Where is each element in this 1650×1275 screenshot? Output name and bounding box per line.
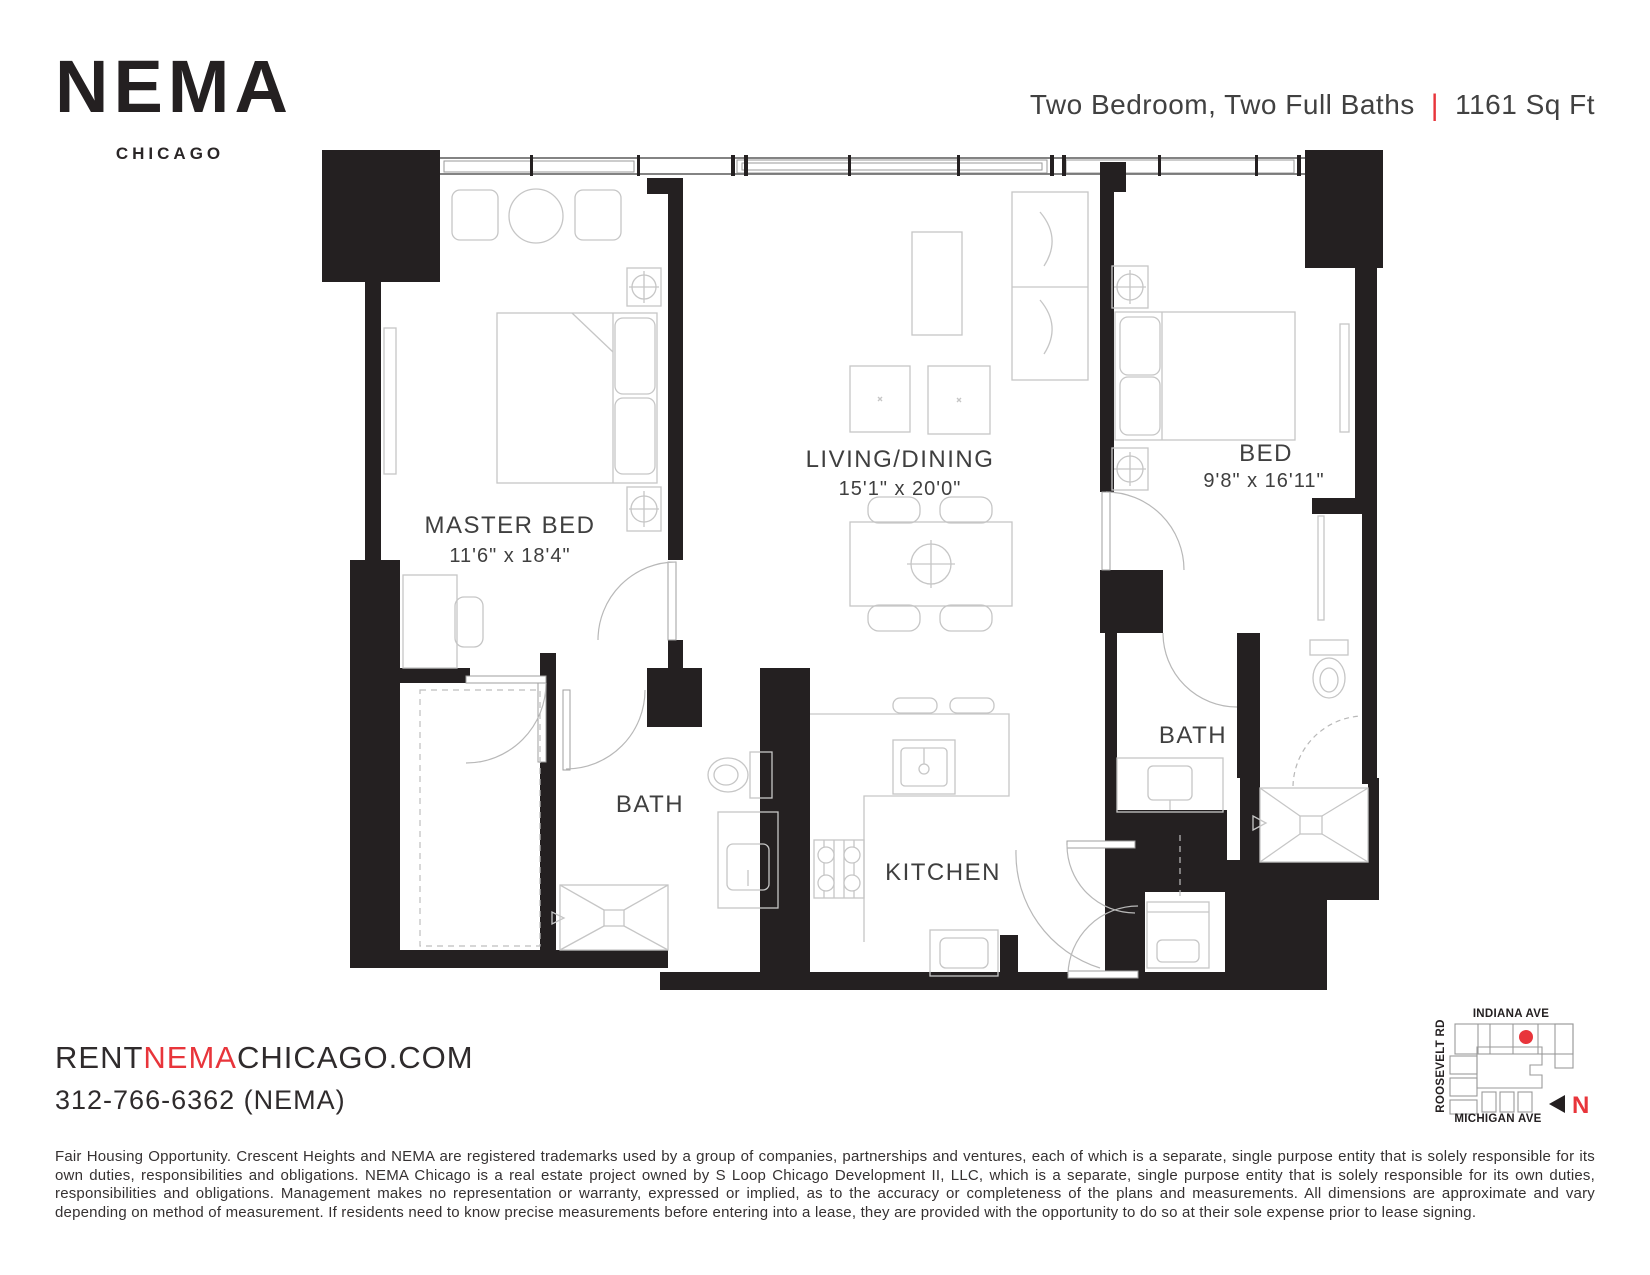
room-label-living-dining: LIVING/DINING	[806, 446, 995, 473]
armchair	[452, 190, 498, 240]
desk-chair	[455, 597, 483, 647]
armchair	[575, 190, 621, 240]
location-map: INDIANA AVE ROOSEVELT RD MICHIGAN AVE N	[1435, 1008, 1589, 1125]
washer-dryer	[1147, 902, 1209, 968]
window-wall	[322, 155, 1383, 176]
bar-stool	[893, 698, 937, 713]
room-dims-master-bed: 11'6" x 18'4"	[449, 545, 570, 567]
pocket-door	[563, 690, 570, 770]
building-marker	[1519, 1030, 1533, 1044]
bar-stool	[950, 698, 994, 713]
fair-housing-disclaimer: Fair Housing Opportunity. Crescent Heigh…	[55, 1148, 1595, 1222]
kitchen-fixtures	[810, 698, 1009, 976]
north-label: N	[1572, 1092, 1589, 1119]
room-label-bed2: BED	[1239, 440, 1293, 467]
shower	[552, 885, 668, 950]
dining-chair	[940, 605, 992, 631]
desk	[403, 575, 457, 668]
wall-mirror	[384, 328, 396, 474]
room-label-bath1: BATH	[616, 791, 684, 818]
website-prefix: RENT	[55, 1040, 143, 1075]
dining-table	[850, 522, 1012, 606]
floorplan-drawing: MASTER BED 11'6" x 18'4" LIVING/DINING 1…	[0, 0, 1650, 1275]
nightstand	[1112, 448, 1148, 490]
room-label-kitchen: KITCHEN	[885, 859, 1001, 886]
wall-mirror	[1340, 324, 1349, 432]
website-suffix: CHICAGO.COM	[237, 1040, 474, 1075]
website-brand: NEMA	[143, 1040, 237, 1075]
bedroom2-furniture	[1112, 266, 1349, 490]
sofa	[1012, 192, 1088, 380]
toilet	[1310, 640, 1348, 698]
pillow	[1120, 377, 1160, 435]
round-table	[509, 189, 563, 243]
living-dining-furniture	[850, 192, 1088, 631]
dining-chair	[868, 497, 920, 523]
website-line: RENTNEMACHICAGO.COM	[55, 1040, 474, 1076]
bed-furniture	[1115, 312, 1295, 440]
room-dims-bed2: 9'8" x 16'11"	[1203, 470, 1324, 492]
shower	[1253, 788, 1368, 862]
room-label-bath2: BATH	[1159, 722, 1227, 749]
building-footprint	[1477, 1047, 1542, 1088]
console	[912, 232, 962, 335]
north-arrow-icon	[1549, 1095, 1565, 1113]
street-indiana-ave: INDIANA AVE	[1473, 1008, 1549, 1020]
nightstand	[627, 487, 661, 531]
walk-in-closet-outline	[420, 690, 540, 946]
pillow	[1120, 317, 1160, 375]
street-michigan-ave: MICHIGAN AVE	[1454, 1113, 1541, 1125]
dining-chair	[868, 605, 920, 631]
nightstand	[1112, 266, 1148, 308]
ottoman	[850, 366, 910, 432]
appliance	[930, 930, 998, 976]
nightstand	[627, 268, 661, 306]
ottoman	[928, 366, 990, 434]
room-label-master-bed: MASTER BED	[424, 512, 595, 539]
pillow	[615, 318, 655, 394]
bath-vanity	[1117, 758, 1223, 812]
cooktop	[814, 840, 864, 898]
street-roosevelt-rd: ROOSEVELT RD	[1435, 1019, 1447, 1112]
dining-chair	[940, 497, 992, 523]
phone-number: 312-766-6362 (NEMA)	[55, 1085, 346, 1116]
room-dims-living-dining: 15'1" x 20'0"	[839, 478, 962, 500]
glass-panel	[1318, 516, 1324, 620]
pillow	[615, 398, 655, 474]
